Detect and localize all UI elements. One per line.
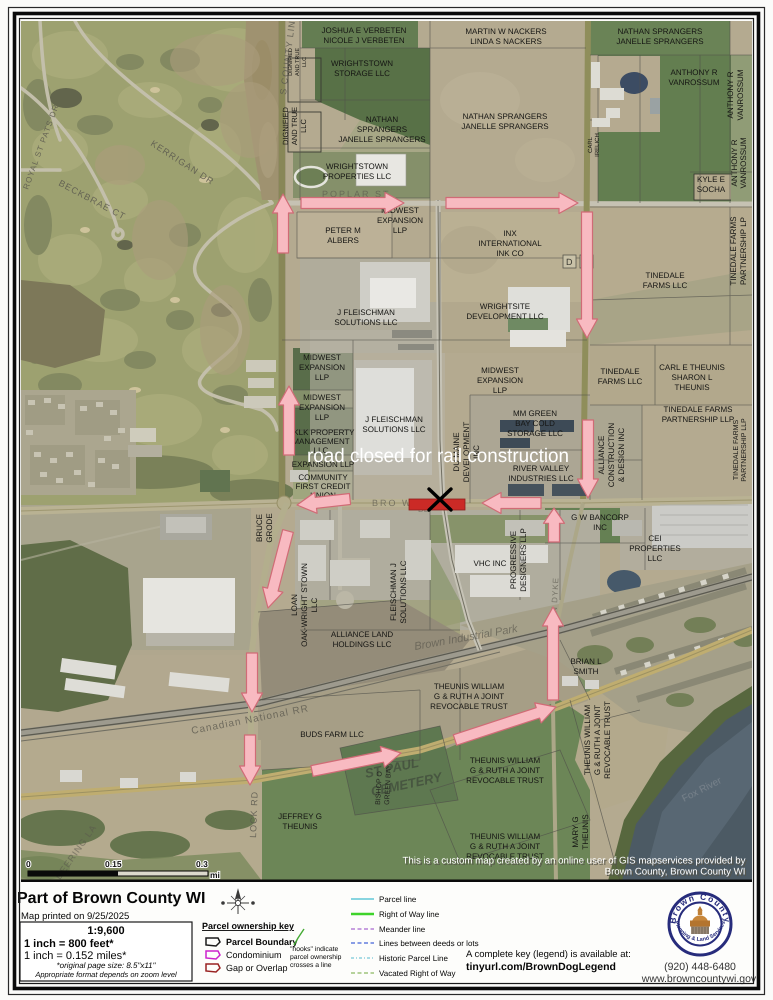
- svg-text:VANROSSUM: VANROSSUM: [736, 69, 745, 120]
- svg-text:TINEDALE FARMSPARTNERSHIP LLP: TINEDALE FARMSPARTNERSHIP LLP: [662, 405, 734, 424]
- svg-text:0.3: 0.3: [196, 859, 208, 869]
- svg-text:G & RUTH A JOINT: G & RUTH A JOINT: [593, 705, 602, 775]
- svg-text:WRIGHTSTOWNPROPERTIES LLC: WRIGHTSTOWNPROPERTIES LLC: [323, 162, 392, 181]
- svg-text:LLC: LLC: [302, 57, 308, 67]
- svg-text:THEUNIS WILLIAMG & RUTH A JOIN: THEUNIS WILLIAMG & RUTH A JOINTREVOCABLE…: [466, 756, 544, 785]
- svg-text:WRIGHTSTOWNSTORAGE LLC: WRIGHTSTOWNSTORAGE LLC: [331, 59, 393, 78]
- svg-text:DIGNIFIED: DIGNIFIED: [288, 48, 294, 76]
- svg-text:BRUCE: BRUCE: [255, 514, 264, 542]
- svg-text:ANTHONY R: ANTHONY R: [726, 71, 735, 118]
- svg-text:TINEDALE FARMS: TINEDALE FARMS: [729, 217, 738, 286]
- svg-text:THEUNIS WILLIAMG & RUTH A JOIN: THEUNIS WILLIAMG & RUTH A JOINTREVOCABLE…: [430, 682, 508, 711]
- svg-text:VANROSSUM: VANROSSUM: [739, 137, 748, 188]
- svg-text:MARY G: MARY G: [571, 816, 580, 847]
- svg-text:NATHAN SPRANGERSJANELLE SPRANG: NATHAN SPRANGERSJANELLE SPRANGERS: [616, 27, 703, 46]
- svg-text:A complete key (legend) is ava: A complete key (legend) is available at:: [466, 949, 631, 960]
- svg-text:THEUNIS WILLIAM: THEUNIS WILLIAM: [583, 705, 592, 776]
- svg-text:mi: mi: [210, 870, 220, 880]
- svg-text:MM GREENBAY COLDSTORAGE LLC: MM GREENBAY COLDSTORAGE LLC: [507, 409, 563, 438]
- svg-text:Historic Parcel Line: Historic Parcel Line: [379, 954, 448, 963]
- svg-text:PROGRESSIVE: PROGRESSIVE: [509, 531, 518, 589]
- svg-text:Map printed on 9/25/2025: Map printed on 9/25/2025: [21, 911, 129, 922]
- svg-text:Part of Brown County WI: Part of Brown County WI: [17, 890, 205, 907]
- svg-text:VHC INC: VHC INC: [474, 559, 507, 568]
- svg-text:tinyurl.com/BrownDogLegend: tinyurl.com/BrownDogLegend: [466, 961, 616, 973]
- svg-text:BUDS FARM LLC: BUDS FARM LLC: [300, 730, 364, 739]
- svg-text:FLEISCHMAN J: FLEISCHMAN J: [389, 563, 398, 621]
- svg-text:Parcel ownership key: Parcel ownership key: [202, 921, 294, 931]
- svg-text:0: 0: [26, 859, 31, 869]
- svg-text:Appropriate format depends on: Appropriate format depends on zoom level: [34, 970, 177, 979]
- svg-text:D: D: [566, 257, 573, 267]
- svg-text:Parcel line: Parcel line: [379, 895, 417, 904]
- svg-text:LOCK RD: LOCK RD: [248, 791, 260, 838]
- svg-text:parcel ownership: parcel ownership: [290, 954, 342, 961]
- svg-text:BRIAN LSMITH: BRIAN LSMITH: [570, 657, 602, 676]
- svg-text:NATHAN SPRANGERSJANELLE SPRANG: NATHAN SPRANGERSJANELLE SPRANGERS: [461, 112, 548, 131]
- svg-text:CARL: CARL: [587, 136, 594, 153]
- svg-text:"hooks" indicate: "hooks" indicate: [290, 946, 338, 953]
- svg-text:0.15: 0.15: [105, 859, 122, 869]
- svg-text:MARTIN W NACKERSLINDA S NACKER: MARTIN W NACKERSLINDA S NACKERS: [465, 27, 546, 46]
- svg-text:Parcel Boundary: Parcel Boundary: [226, 937, 298, 947]
- svg-text:Gap or Overlap: Gap or Overlap: [226, 963, 288, 973]
- svg-text:1:9,600: 1:9,600: [87, 925, 124, 937]
- svg-text:GRODE: GRODE: [265, 513, 274, 542]
- svg-text:1 inch = 800 feet*: 1 inch = 800 feet*: [24, 938, 114, 950]
- svg-text:(920) 448-6480: (920) 448-6480: [664, 961, 736, 973]
- svg-text:KYLE ESOCHA: KYLE ESOCHA: [697, 175, 726, 194]
- svg-text:TINEDALEFARMS LLC: TINEDALEFARMS LLC: [643, 271, 688, 290]
- svg-text:& DESIGN INC: & DESIGN INC: [617, 428, 626, 482]
- svg-text:ANTHONY R: ANTHONY R: [730, 139, 739, 186]
- svg-text:This is a custom map created b: This is a custom map created by an onlin…: [403, 856, 746, 867]
- svg-text:Lines between deeds or lots: Lines between deeds or lots: [379, 939, 479, 948]
- svg-text:JEFFREY GTHEUNIS: JEFFREY GTHEUNIS: [278, 812, 322, 831]
- svg-text:DIGNIFIED: DIGNIFIED: [281, 106, 290, 145]
- svg-text:PARTNERSHIP LLP: PARTNERSHIP LLP: [741, 418, 748, 482]
- svg-text:crosses a line: crosses a line: [290, 962, 332, 969]
- svg-text:TINEDALE FARMS: TINEDALE FARMS: [733, 420, 740, 481]
- svg-text:J FLEISCHMANSOLUTIONS LLC: J FLEISCHMANSOLUTIONS LLC: [334, 308, 397, 327]
- svg-text:REVOCABLE TRUST: REVOCABLE TRUST: [603, 701, 612, 779]
- svg-text:AND TRUE: AND TRUE: [290, 107, 299, 145]
- svg-text:ALLIANCE: ALLIANCE: [597, 436, 606, 475]
- svg-text:Vacated Right of Way: Vacated Right of Way: [379, 969, 455, 978]
- svg-text:JOSHUA E VERBETENNICOLE J VERB: JOSHUA E VERBETENNICOLE J VERBETEN: [322, 26, 407, 45]
- svg-text:Right of Way line: Right of Way line: [379, 910, 440, 919]
- svg-text:AND TRUE: AND TRUE: [295, 48, 301, 76]
- svg-text:LOAN: LOAN: [290, 594, 299, 616]
- svg-text:ANTHONY RVANROSSUM: ANTHONY RVANROSSUM: [669, 68, 720, 87]
- svg-text:THEUNIS: THEUNIS: [581, 814, 590, 849]
- svg-text:J FLEISCHMANSOLUTIONS LLC: J FLEISCHMANSOLUTIONS LLC: [362, 415, 425, 434]
- svg-text:LLC: LLC: [310, 597, 319, 612]
- svg-text:CONSTRUCTION: CONSTRUCTION: [607, 423, 616, 488]
- svg-text:Brown County, Brown County WI: Brown County, Brown County WI: [605, 867, 746, 878]
- svg-text:TINEDALEFARMS LLC: TINEDALEFARMS LLC: [598, 367, 643, 386]
- svg-text:PARTNERSHIP LP: PARTNERSHIP LP: [739, 217, 748, 285]
- svg-text:*original page size: 8.5"x11": *original page size: 8.5"x11": [57, 961, 157, 970]
- svg-text:IRELICH: IRELICH: [594, 133, 601, 157]
- svg-text:Meander line: Meander line: [379, 925, 426, 934]
- svg-text:DESIGNERS LLP: DESIGNERS LLP: [519, 528, 528, 592]
- svg-text:road closed for rail construct: road closed for rail construction: [307, 445, 569, 467]
- svg-text:SOLUTIONS LLC: SOLUTIONS LLC: [399, 560, 408, 623]
- svg-text:ALLIANCE LANDHOLDINGS LLC: ALLIANCE LANDHOLDINGS LLC: [331, 630, 393, 649]
- svg-text:OAK-WRIGHT STOWN: OAK-WRIGHT STOWN: [300, 563, 309, 647]
- svg-text:Condominium: Condominium: [226, 950, 282, 960]
- svg-text:LLC: LLC: [299, 119, 308, 133]
- svg-text:PETER MALBERS: PETER MALBERS: [325, 226, 361, 245]
